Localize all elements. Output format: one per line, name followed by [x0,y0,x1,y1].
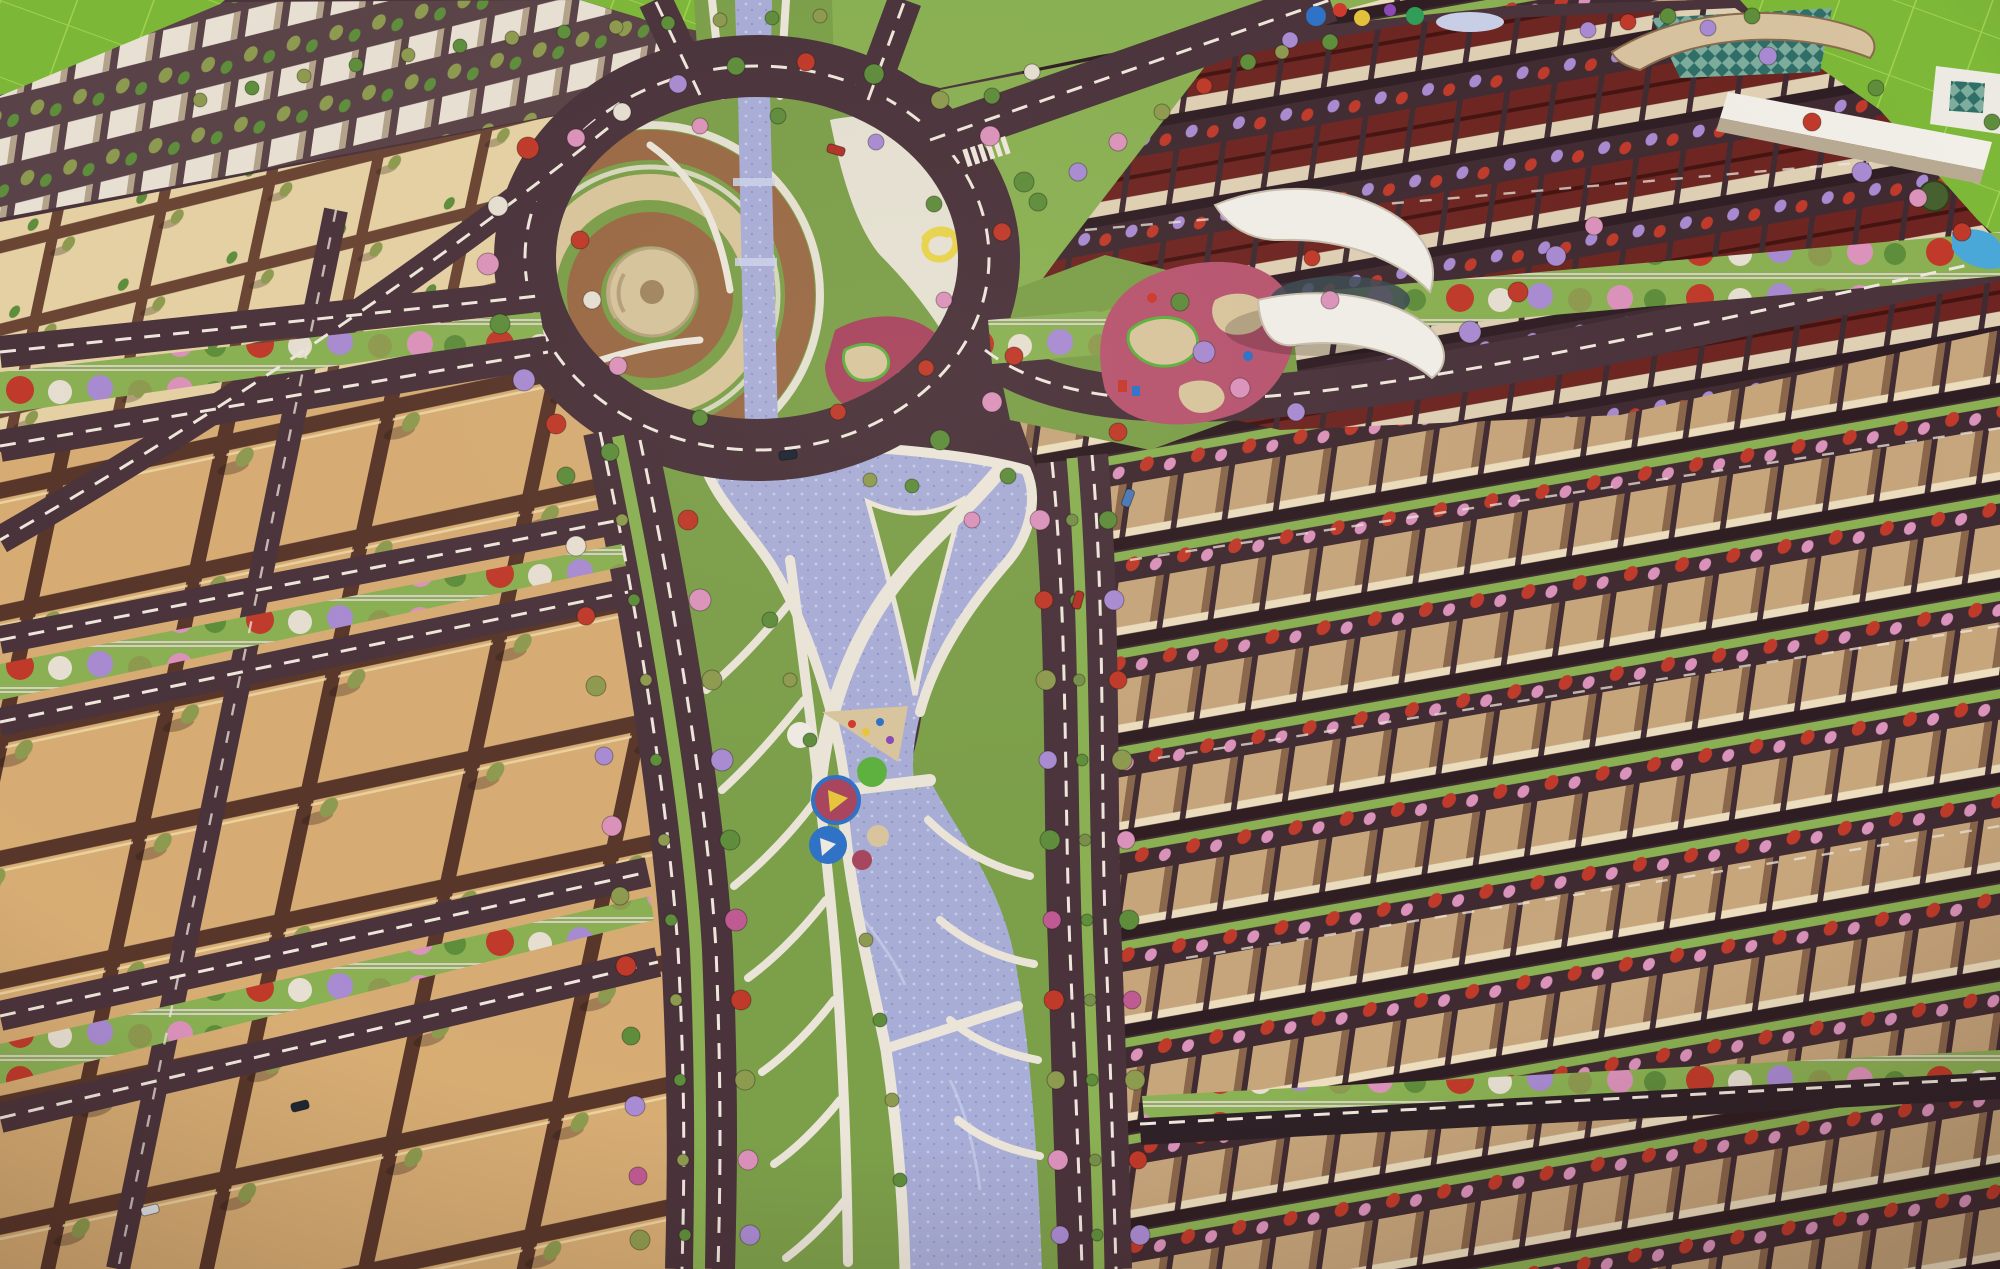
aerial-masterplan-render: Aerial 3D master-plan render of a townsh… [0,0,2000,1269]
render-figure: Aerial 3D master-plan render of a townsh… [0,0,2000,1269]
vignette-overlay [0,0,2000,1269]
render-canvas [0,0,2000,1269]
